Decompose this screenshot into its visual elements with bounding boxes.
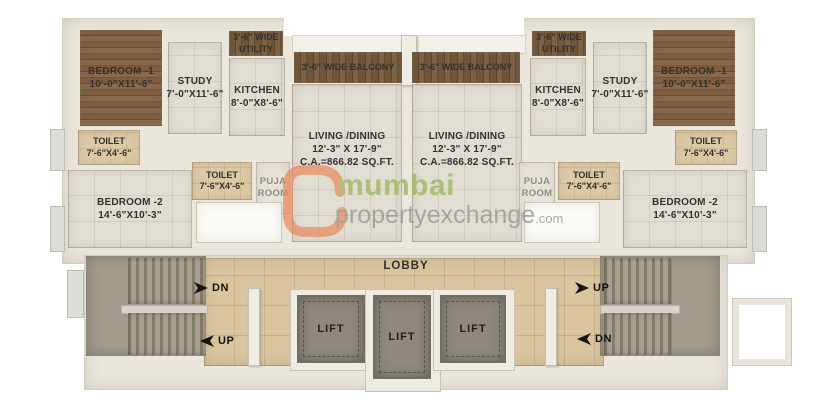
room-label: 3'-6" WIDE bbox=[233, 32, 278, 43]
room-balcony-left: 3'-6" WIDE BALCONY bbox=[294, 52, 402, 83]
right-arrow-icon bbox=[575, 282, 589, 294]
room-dims: 14'-6"X10'-3" bbox=[653, 209, 717, 222]
room-label: ROOM bbox=[522, 188, 553, 200]
room-label: STUDY bbox=[603, 75, 638, 88]
room-bedroom2-left: BEDROOM -2 14'-6"X10'-3" bbox=[68, 170, 192, 248]
balcony-recess bbox=[284, 12, 524, 36]
ledge-left-lower bbox=[50, 206, 65, 252]
lift-label: LIFT bbox=[388, 330, 415, 344]
lift-3: LIFT bbox=[440, 295, 506, 363]
room-dims: 12'-3" X 17'-9" bbox=[432, 143, 502, 156]
ledge-bottom-left bbox=[67, 270, 84, 318]
room-dims: 7'-6"X4'-6" bbox=[684, 148, 729, 159]
stair-flight-upper-left bbox=[128, 258, 206, 304]
stair-direction-dn-right: DN bbox=[577, 333, 612, 345]
planter-bottom-right bbox=[733, 299, 791, 365]
room-label: LIVING /DINING bbox=[429, 130, 506, 143]
room-label: BEDROOM -1 bbox=[88, 65, 154, 78]
room-label: TOILET bbox=[206, 170, 238, 181]
lobby-pillar-left bbox=[248, 288, 260, 366]
lift-2: LIFT bbox=[373, 295, 431, 379]
room-dims: 7'-6"X4'-6" bbox=[200, 181, 245, 192]
up-label: UP bbox=[218, 335, 234, 347]
room-label: UTILITY bbox=[239, 44, 273, 55]
room-area: C.A.=866.82 SQ.FT. bbox=[420, 156, 514, 169]
right-arrow-icon bbox=[194, 282, 208, 294]
room-dims: 10'-0"X11'-6" bbox=[90, 78, 153, 91]
room-balcony-right: 3'-6" WIDE BALCONY bbox=[412, 52, 520, 83]
room-label: BEDROOM -1 bbox=[661, 65, 727, 78]
room-label: KITCHEN bbox=[234, 84, 280, 97]
ledge-right-lower bbox=[752, 206, 767, 252]
room-dims: 8'-0"X8'-6" bbox=[231, 97, 283, 110]
lift-label: LIFT bbox=[317, 322, 344, 336]
stair-direction-up-left: UP bbox=[200, 335, 234, 347]
room-living-right: LIVING /DINING 12'-3" X 17'-9" C.A.=866.… bbox=[412, 84, 522, 242]
room-dims: 7'-0"X11'-6" bbox=[166, 88, 223, 101]
room-dims: 14'-6"X10'-3" bbox=[98, 209, 162, 222]
room-foyer-left bbox=[196, 202, 282, 243]
lobby-label: LOBBY bbox=[366, 259, 446, 274]
up-label: UP bbox=[593, 282, 609, 294]
room-dims: 10'-0"X11'-6" bbox=[663, 78, 726, 91]
room-label: STUDY bbox=[178, 75, 213, 88]
room-toilet-mid-right: TOILET 7'-6"X4'-6" bbox=[558, 162, 620, 200]
left-arrow-icon bbox=[200, 335, 214, 347]
room-label: TOILET bbox=[690, 136, 722, 147]
room-dims: 7'-0"X11'-6" bbox=[591, 88, 648, 101]
room-utility-right: 3'-6" WIDE UTILITY bbox=[532, 31, 586, 56]
room-label: 3'-6" WIDE BALCONY bbox=[302, 62, 394, 73]
room-toilet-top-right: TOILET 7'-6"X4'-6" bbox=[675, 130, 737, 165]
stair-flight-lower-right bbox=[604, 313, 672, 355]
room-dims: 7'-6"X4'-6" bbox=[567, 181, 612, 192]
room-toilet-mid-left: TOILET 7'-6"X4'-6" bbox=[192, 162, 252, 200]
dn-label: DN bbox=[595, 333, 612, 345]
room-label: LIVING /DINING bbox=[309, 130, 386, 143]
room-bedroom1-left: BEDROOM -1 10'-0"X11'-6" bbox=[80, 30, 162, 126]
ledge-right-upper bbox=[752, 129, 767, 171]
room-label: ROOM bbox=[258, 188, 289, 200]
room-area: C.A.=866.82 SQ.FT. bbox=[300, 156, 394, 169]
room-dims: 7'-6"X4'-6" bbox=[87, 148, 132, 159]
room-toilet-top-left: TOILET 7'-6"X4'-6" bbox=[78, 130, 140, 165]
stair-direction-dn-left: DN bbox=[194, 282, 229, 294]
room-label: PUJA bbox=[260, 176, 287, 188]
room-kitchen-right: KITCHEN 8'-0"X8'-6" bbox=[530, 58, 586, 136]
ledge-left-upper bbox=[50, 129, 65, 171]
room-study-right: STUDY 7'-0"X11'-6" bbox=[593, 42, 647, 134]
lift-label: LIFT bbox=[459, 322, 486, 336]
lift-1: LIFT bbox=[297, 295, 365, 363]
room-label: 3'-6" WIDE BALCONY bbox=[420, 62, 512, 73]
room-dims: 8'-0"X8'-6" bbox=[532, 97, 584, 110]
lobby-pillar-right bbox=[545, 288, 557, 366]
dn-label: DN bbox=[212, 282, 229, 294]
room-utility-left: 3'-6" WIDE UTILITY bbox=[229, 31, 283, 56]
stair-flight-lower-left bbox=[128, 313, 206, 355]
room-label: 3'-6" WIDE bbox=[536, 32, 581, 43]
stair-flight-upper-right bbox=[604, 258, 672, 304]
room-label: BEDROOM -2 bbox=[652, 196, 718, 209]
room-label: UTILITY bbox=[542, 44, 576, 55]
room-label: BEDROOM -2 bbox=[97, 196, 163, 209]
room-label: PUJA bbox=[524, 176, 551, 188]
room-dims: 12'-3" X 17'-9" bbox=[312, 143, 382, 156]
room-label: TOILET bbox=[573, 170, 605, 181]
left-arrow-icon bbox=[577, 333, 591, 345]
room-label: TOILET bbox=[93, 136, 125, 147]
room-bedroom2-right: BEDROOM -2 14'-6"X10'-3" bbox=[623, 170, 747, 248]
room-living-left: LIVING /DINING 12'-3" X 17'-9" C.A.=866.… bbox=[292, 84, 402, 242]
room-study-left: STUDY 7'-0"X11'-6" bbox=[168, 42, 222, 134]
room-bedroom1-right: BEDROOM -1 10'-0"X11'-6" bbox=[653, 30, 735, 126]
floor-plan-canvas: BEDROOM -1 10'-0"X11'-6" STUDY 7'-0"X11'… bbox=[0, 0, 815, 400]
room-foyer-right bbox=[524, 202, 600, 243]
room-label: KITCHEN bbox=[535, 84, 581, 97]
room-kitchen-left: KITCHEN 8'-0"X8'-6" bbox=[229, 58, 285, 136]
stair-direction-up-right: UP bbox=[575, 282, 609, 294]
